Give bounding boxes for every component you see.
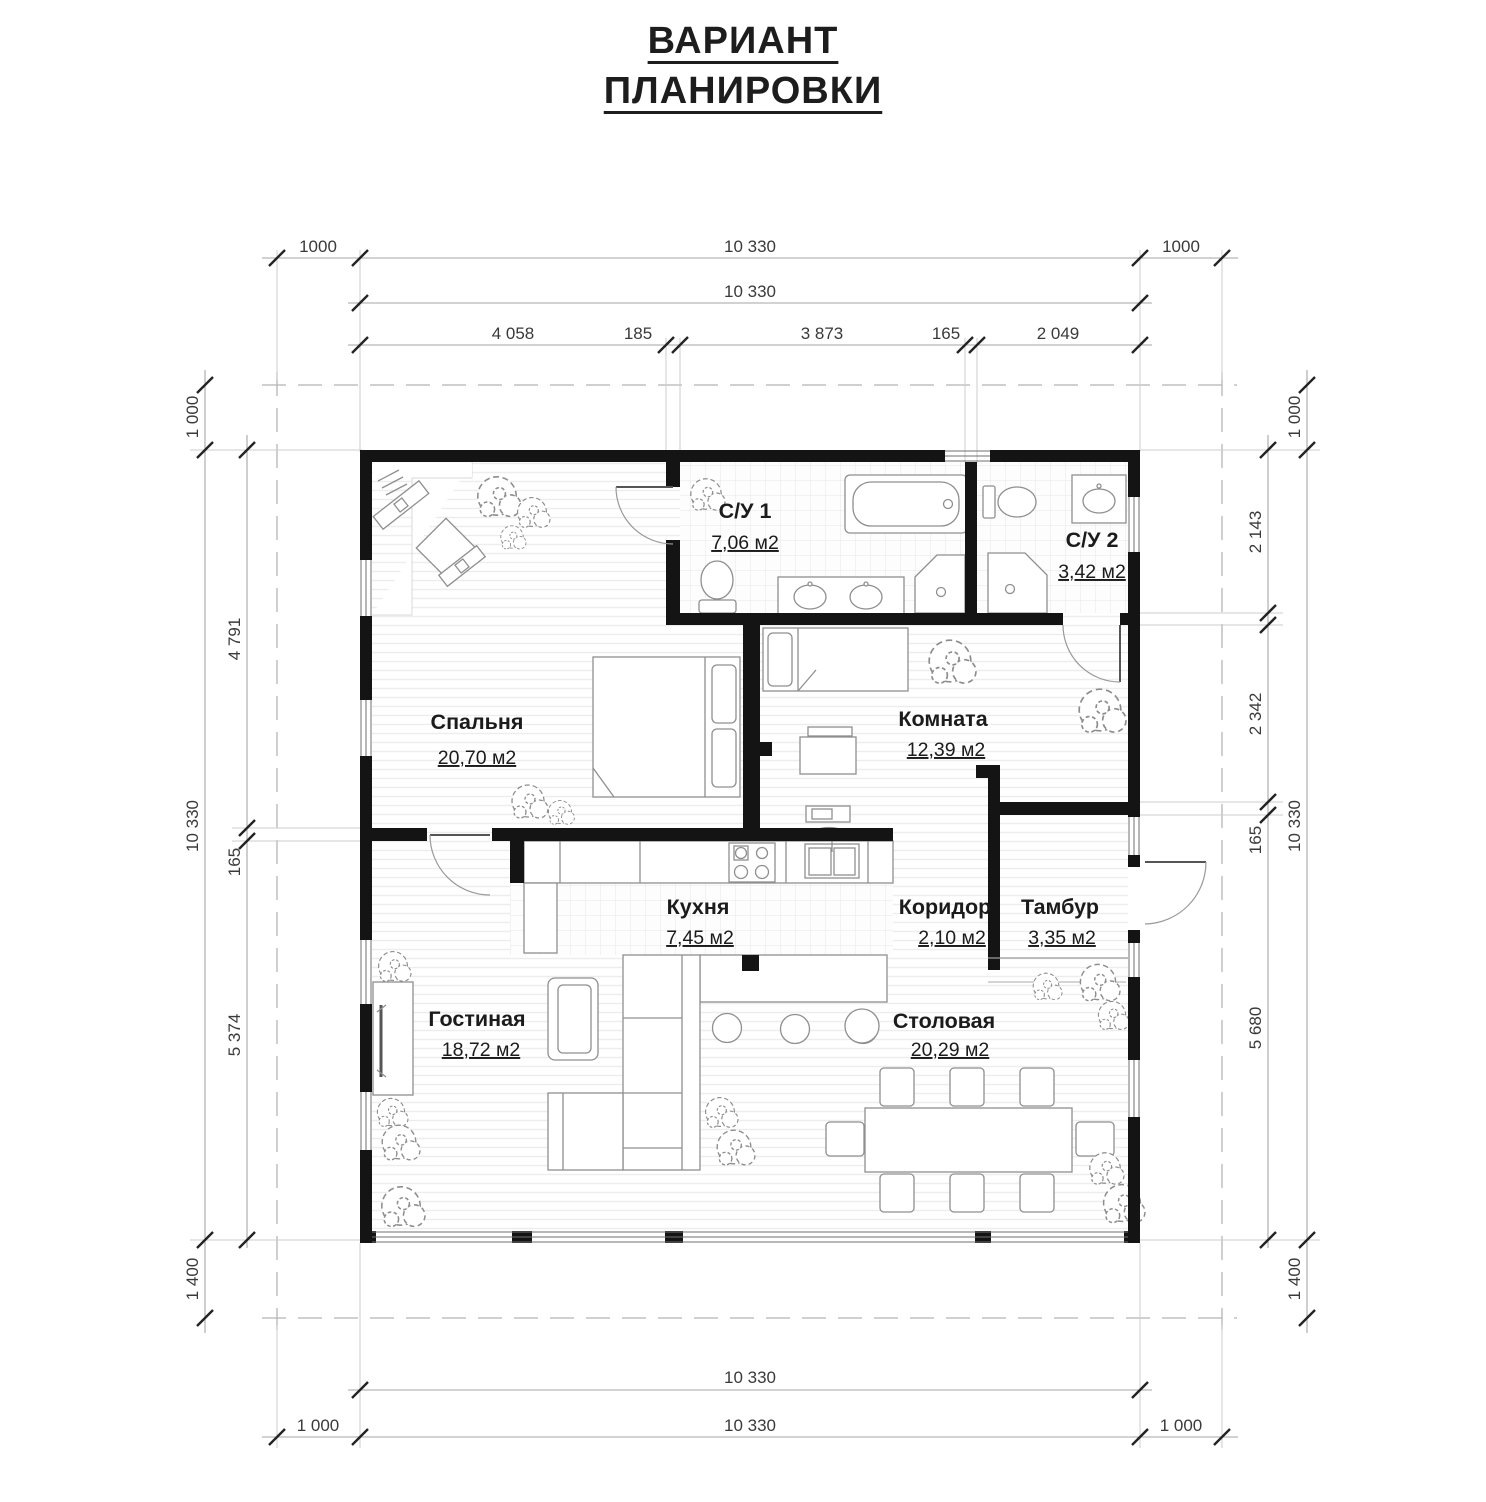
toilet-1 [699, 561, 736, 613]
dim-top-left-overhang: 1000 [299, 237, 337, 256]
dim-right-seg1: 2 143 [1246, 511, 1265, 554]
dim-top-seg5: 2 049 [1037, 324, 1080, 343]
wall [743, 625, 760, 841]
window [1129, 817, 1139, 855]
wall [1128, 930, 1140, 943]
window [945, 451, 990, 461]
wall [1000, 802, 1128, 815]
room-area-living: 18,72 м2 [442, 1039, 520, 1061]
toilet-2 [983, 486, 1036, 518]
wall [372, 828, 427, 841]
wall [360, 616, 372, 700]
wall [666, 462, 680, 487]
window [361, 560, 371, 616]
room-label-living: Гостиная [428, 1007, 525, 1031]
dim-bottom-left-overhang: 1 000 [297, 1416, 340, 1435]
dim-right-seg4: 5 680 [1246, 1007, 1265, 1050]
bathtub [845, 475, 967, 533]
room-label-childroom: Комната [898, 707, 988, 731]
room-label-bath1: С/У 1 [719, 499, 772, 523]
room-label-bath2: С/У 2 [1066, 528, 1119, 552]
room-area-bedroom: 20,70 м2 [438, 747, 516, 769]
dim-top-right-overhang: 1000 [1162, 237, 1200, 256]
window [1129, 943, 1139, 977]
room-area-bath1: 7,06 м2 [711, 532, 779, 554]
door-entrance [1145, 862, 1206, 924]
room-area-kitchen: 7,45 м2 [666, 927, 734, 949]
dim-right-overhang-top: 1 000 [1285, 396, 1304, 439]
bar-stool [713, 1014, 742, 1043]
wall [666, 540, 680, 625]
floor-plan-page: ВАРИАНТ ПЛАНИРОВКИ [0, 0, 1486, 1502]
wall [976, 765, 990, 778]
room-label-bedroom: Спальня [431, 710, 524, 734]
sink-vanity-2 [1072, 475, 1126, 523]
wall [666, 613, 1063, 625]
room-label-kitchen: Кухня [667, 895, 730, 919]
room-label-tambour: Тамбур [1021, 895, 1099, 919]
window [1129, 1060, 1139, 1117]
dim-top-seg2: 185 [624, 324, 652, 343]
wall [1128, 855, 1140, 867]
wall [1128, 1117, 1140, 1243]
wall [360, 1004, 372, 1092]
dim-left-overhang-top: 1 000 [183, 396, 202, 439]
room-label-dining: Столовая [893, 1009, 995, 1033]
dim-bottom-overall: 10 330 [724, 1416, 776, 1435]
room-area-bath2: 3,42 м2 [1058, 561, 1126, 583]
room-area-dining: 20,29 м2 [911, 1039, 989, 1061]
tv-console [373, 982, 413, 1095]
dim-top-seg3: 3 873 [801, 324, 844, 343]
window [361, 940, 371, 1004]
dim-bottom-right-overhang: 1 000 [1160, 1416, 1203, 1435]
wall [1120, 613, 1128, 625]
dim-top-seg4: 165 [932, 324, 960, 343]
wall [492, 828, 893, 841]
wall [360, 756, 372, 940]
window [1129, 497, 1139, 552]
room-area-corridor: 2,10 м2 [918, 927, 986, 949]
wall [360, 450, 945, 462]
floor-plan-drawing: Спальня 20,70 м2 С/У 1 7,06 м2 С/У 2 3,4… [0, 0, 1486, 1502]
room-area-tambour: 3,35 м2 [1028, 927, 1096, 949]
side-table [845, 1009, 879, 1043]
dim-left-seg3: 5 374 [225, 1014, 244, 1057]
drawing-title-line2: ПЛАНИРОВКИ [604, 66, 883, 116]
wall [1128, 977, 1140, 1060]
dim-top-overall: 10 330 [724, 237, 776, 256]
dim-right-seg3: 165 [1246, 826, 1265, 854]
bar-counter [700, 955, 887, 1002]
wall [760, 742, 772, 756]
dim-top-total: 10 330 [724, 282, 776, 301]
wall [988, 765, 1000, 970]
armchair [548, 978, 598, 1060]
dim-right-seg2: 2 342 [1246, 693, 1265, 736]
wall [990, 450, 1140, 462]
dim-left-seg1: 4 791 [225, 618, 244, 661]
dining-table [865, 1108, 1072, 1172]
window [361, 700, 371, 756]
dim-top-seg1: 4 058 [492, 324, 535, 343]
single-bed [763, 628, 908, 691]
window [361, 1092, 371, 1150]
dim-right-overall: 10 330 [1285, 800, 1304, 852]
stove [729, 843, 775, 882]
room-area-childroom: 12,39 м2 [907, 739, 985, 761]
wall [965, 462, 977, 625]
room-label-corridor: Коридор [899, 895, 992, 919]
dim-right-overhang-bot: 1 400 [1285, 1258, 1304, 1301]
double-sink-vanity [778, 577, 904, 617]
wall [360, 1150, 372, 1243]
dim-left-overall: 10 330 [183, 800, 202, 852]
window-band [372, 1232, 1128, 1242]
wall [360, 450, 372, 560]
dim-bottom-total: 10 330 [724, 1368, 776, 1387]
column [742, 955, 759, 971]
wall [1128, 450, 1140, 497]
kitchen-sink [805, 838, 859, 878]
wall [510, 841, 524, 883]
double-bed [593, 657, 740, 797]
dim-left-seg2: 165 [225, 848, 244, 876]
bar-stool [781, 1015, 810, 1044]
drawing-title-line1: ВАРИАНТ [648, 16, 839, 66]
drawing-title: ВАРИАНТ ПЛАНИРОВКИ [0, 16, 1486, 116]
dim-left-overhang-bot: 1 400 [183, 1258, 202, 1301]
wall [1128, 552, 1140, 817]
